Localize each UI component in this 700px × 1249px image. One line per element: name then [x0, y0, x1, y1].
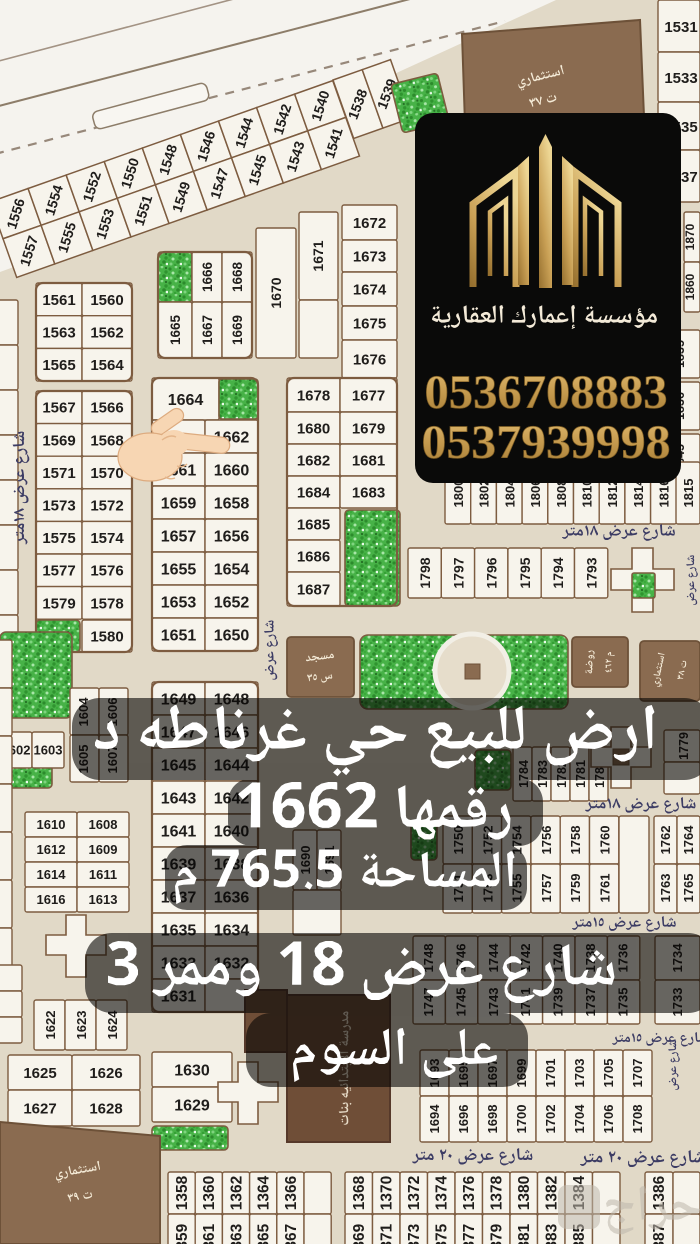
svg-text:1580: 1580	[90, 628, 123, 645]
svg-text:1666: 1666	[200, 261, 215, 292]
svg-text:1684: 1684	[297, 484, 331, 501]
svg-text:1698: 1698	[485, 1105, 500, 1134]
svg-text:1651: 1651	[161, 627, 197, 644]
svg-text:1379: 1379	[489, 1223, 506, 1244]
svg-text:1362: 1362	[228, 1176, 245, 1210]
svg-text:1656: 1656	[214, 528, 250, 545]
svg-text:1764: 1764	[681, 825, 696, 855]
svg-text:1360: 1360	[201, 1176, 218, 1210]
svg-text:1681: 1681	[352, 452, 385, 469]
svg-text:1798: 1798	[417, 557, 433, 588]
svg-text:1665: 1665	[168, 314, 183, 345]
svg-text:1375: 1375	[434, 1223, 451, 1244]
svg-text:1561: 1561	[42, 292, 75, 309]
svg-text:1376: 1376	[461, 1175, 478, 1210]
svg-text:1793: 1793	[584, 557, 600, 588]
svg-text:1579: 1579	[42, 595, 75, 612]
svg-text:1761: 1761	[598, 874, 613, 903]
svg-text:1366: 1366	[283, 1175, 300, 1210]
svg-text:1382: 1382	[544, 1176, 561, 1210]
svg-text:1687: 1687	[297, 581, 330, 598]
svg-text:1763: 1763	[658, 874, 673, 903]
svg-text:1562: 1562	[90, 324, 123, 341]
svg-text:1626: 1626	[89, 1065, 122, 1082]
svg-text:1577: 1577	[42, 563, 75, 580]
svg-text:1655: 1655	[161, 561, 197, 578]
svg-text:1576: 1576	[90, 563, 123, 580]
svg-text:1657: 1657	[161, 528, 197, 545]
svg-text:1614: 1614	[37, 867, 67, 882]
svg-text:1759: 1759	[568, 874, 583, 903]
svg-text:1704: 1704	[572, 1104, 587, 1134]
svg-text:1367: 1367	[283, 1224, 300, 1244]
svg-text:1627: 1627	[23, 1100, 56, 1117]
svg-text:1365: 1365	[256, 1223, 273, 1244]
svg-text:1694: 1694	[427, 1104, 442, 1134]
svg-text:1652: 1652	[214, 594, 250, 611]
svg-text:1378: 1378	[489, 1175, 506, 1210]
svg-text:1794: 1794	[550, 557, 566, 588]
svg-text:1760: 1760	[598, 826, 613, 855]
svg-text:1573: 1573	[42, 498, 75, 515]
svg-text:1533: 1533	[664, 70, 697, 87]
svg-text:1762: 1762	[658, 826, 673, 855]
svg-text:1679: 1679	[352, 420, 385, 437]
svg-text:1560: 1560	[90, 292, 123, 309]
svg-text:1624: 1624	[105, 1010, 120, 1040]
svg-text:1696: 1696	[456, 1105, 471, 1134]
svg-text:1603: 1603	[34, 743, 63, 758]
svg-text:1611: 1611	[89, 867, 117, 882]
svg-text:1757: 1757	[539, 874, 554, 903]
svg-text:1616: 1616	[37, 892, 66, 907]
svg-text:1708: 1708	[630, 1105, 645, 1134]
svg-text:1628: 1628	[89, 1100, 122, 1117]
svg-text:1765: 1765	[681, 874, 696, 903]
svg-text:1796: 1796	[484, 557, 500, 588]
svg-text:1700: 1700	[514, 1105, 529, 1134]
svg-text:1682: 1682	[297, 452, 330, 469]
svg-text:1566: 1566	[90, 400, 123, 417]
svg-text:1664: 1664	[168, 392, 204, 409]
svg-text:1625: 1625	[23, 1065, 56, 1082]
svg-text:1609: 1609	[89, 842, 118, 857]
svg-text:1574: 1574	[90, 530, 124, 547]
svg-text:1370: 1370	[379, 1176, 396, 1210]
svg-text:1707: 1707	[630, 1059, 645, 1088]
svg-text:1383: 1383	[544, 1223, 561, 1244]
svg-text:1531: 1531	[664, 19, 697, 36]
svg-text:1685: 1685	[297, 516, 330, 533]
svg-text:1610: 1610	[37, 817, 66, 832]
svg-text:0537939998: 0537939998	[422, 416, 671, 469]
svg-text:1668: 1668	[230, 261, 245, 292]
svg-text:1677: 1677	[352, 387, 385, 404]
svg-text:1705: 1705	[601, 1059, 616, 1088]
svg-text:1674: 1674	[353, 281, 387, 298]
svg-text:1571: 1571	[42, 465, 75, 482]
svg-text:1373: 1373	[406, 1223, 423, 1244]
svg-text:1569: 1569	[42, 432, 75, 449]
svg-text:1701: 1701	[543, 1059, 558, 1088]
svg-text:1623: 1623	[74, 1011, 89, 1040]
svg-text:0536708883: 0536708883	[425, 366, 668, 419]
svg-text:1797: 1797	[450, 557, 466, 588]
svg-text:1676: 1676	[353, 351, 386, 368]
svg-text:1374: 1374	[434, 1175, 451, 1210]
svg-text:1613: 1613	[89, 892, 118, 907]
svg-text:1369: 1369	[351, 1223, 368, 1244]
svg-text:1363: 1363	[228, 1223, 245, 1244]
svg-text:1608: 1608	[89, 817, 118, 832]
svg-text:1675: 1675	[353, 315, 386, 332]
svg-text:1870: 1870	[683, 223, 697, 250]
svg-text:1758: 1758	[568, 826, 583, 855]
svg-text:1371: 1371	[379, 1223, 396, 1244]
svg-text:1612: 1612	[37, 842, 66, 857]
svg-text:1359: 1359	[174, 1223, 191, 1244]
svg-text:1578: 1578	[90, 595, 123, 612]
svg-text:1667: 1667	[200, 315, 215, 345]
svg-text:1673: 1673	[353, 248, 386, 265]
svg-text:1575: 1575	[42, 530, 75, 547]
svg-text:1372: 1372	[406, 1176, 423, 1210]
svg-text:1660: 1660	[214, 462, 250, 479]
svg-text:1641: 1641	[161, 823, 197, 840]
svg-text:1572: 1572	[90, 498, 123, 515]
svg-text:1680: 1680	[297, 420, 330, 437]
svg-text:1678: 1678	[297, 387, 330, 404]
svg-text:1629: 1629	[174, 1097, 210, 1114]
svg-text:1630: 1630	[174, 1062, 210, 1079]
svg-text:1860: 1860	[683, 273, 697, 300]
svg-text:1669: 1669	[230, 315, 245, 345]
svg-text:1658: 1658	[214, 495, 250, 512]
svg-text:1653: 1653	[161, 594, 197, 611]
svg-text:1622: 1622	[43, 1011, 58, 1040]
svg-text:1672: 1672	[353, 215, 386, 232]
svg-text:1686: 1686	[297, 548, 330, 565]
svg-text:1368: 1368	[351, 1175, 368, 1210]
svg-text:1703: 1703	[572, 1059, 587, 1088]
svg-text:1659: 1659	[161, 495, 197, 512]
svg-text:1795: 1795	[517, 557, 533, 588]
svg-text:1361: 1361	[201, 1223, 218, 1244]
svg-text:1364: 1364	[256, 1175, 273, 1210]
svg-text:1650: 1650	[214, 627, 250, 644]
svg-text:1563: 1563	[42, 324, 75, 341]
svg-text:1564: 1564	[90, 357, 124, 374]
svg-text:1381: 1381	[516, 1223, 533, 1244]
svg-text:1683: 1683	[352, 484, 385, 501]
svg-text:1377: 1377	[461, 1224, 478, 1244]
svg-text:1670: 1670	[268, 277, 284, 308]
svg-text:1567: 1567	[42, 400, 75, 417]
svg-text:1706: 1706	[601, 1105, 616, 1134]
svg-text:1654: 1654	[214, 561, 250, 578]
svg-text:1358: 1358	[174, 1175, 191, 1210]
svg-text:1702: 1702	[543, 1105, 558, 1134]
svg-text:1671: 1671	[310, 240, 326, 271]
svg-text:1380: 1380	[516, 1176, 533, 1210]
svg-text:1815: 1815	[681, 479, 696, 508]
svg-text:1568: 1568	[90, 432, 123, 449]
svg-text:1565: 1565	[42, 357, 75, 374]
svg-text:1643: 1643	[161, 790, 197, 807]
svg-text:1570: 1570	[90, 465, 123, 482]
